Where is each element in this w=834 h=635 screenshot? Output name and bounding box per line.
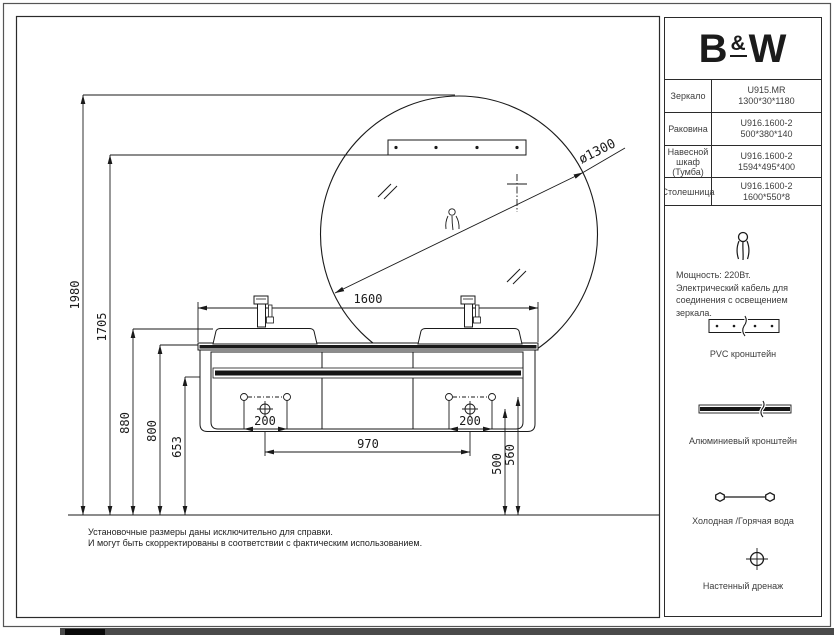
dim-hole-spacing-right: 200 <box>459 414 481 428</box>
row-value: U916.1600-2 1594*495*400 <box>712 146 821 177</box>
dim-hole-height: 560 <box>503 444 517 466</box>
dim-total-height: 1980 <box>68 281 82 310</box>
dim-countertop-width: 1600 <box>354 292 383 306</box>
dim-countertop-height: 800 <box>145 420 159 442</box>
bottom-window-edge <box>60 628 834 635</box>
center-register-mark <box>507 174 527 212</box>
brand-logo: B & W <box>665 18 821 80</box>
row-label: Столешница <box>665 178 712 205</box>
table-row-countertop: Столешница U916.1600-2 1600*550*8 <box>665 178 821 206</box>
dimension-lines <box>83 95 518 515</box>
row-value: U915.MR 1300*30*1180 <box>712 80 821 112</box>
left-basin <box>213 329 317 345</box>
dim-mirror-diameter: ø1300 <box>577 136 619 167</box>
dim-hole-spacing-left: 200 <box>254 414 276 428</box>
pvc-bracket-icon <box>708 315 780 342</box>
table-row-mirror: Зеркало U915.MR 1300*30*1180 <box>665 80 821 113</box>
power-cable-icon <box>727 230 759 271</box>
mirror-cable-icon <box>446 209 459 230</box>
logo-letter-b: B <box>699 29 729 69</box>
power-note: Мощность: 220Вт. Электрический кабель дл… <box>676 269 818 319</box>
row-value: U916.1600-2 1600*550*8 <box>712 178 821 205</box>
wall-drain-icon <box>744 546 770 577</box>
row-label: Навесной шкаф (Тумба) <box>665 146 712 177</box>
row-value: U916.1600-2 500*380*140 <box>712 113 821 145</box>
table-row-cabinet: Навесной шкаф (Тумба) U916.1600-2 1594*4… <box>665 146 821 178</box>
glass-hatch-marks <box>378 184 526 284</box>
dim-drain-spacing: 970 <box>357 437 379 451</box>
right-basin <box>418 329 522 345</box>
aluminum-bracket-caption: Алюминиевый кронштейн <box>665 436 821 446</box>
dim-basin-height: 880 <box>118 412 132 434</box>
mirror-mount-bracket <box>388 140 526 155</box>
aluminum-bracket-icon <box>698 400 792 423</box>
drain-caption: Настенный дренаж <box>665 581 821 591</box>
water-caption: Холодная /Горячая вода <box>665 516 821 526</box>
water-connections-icon <box>713 490 777 509</box>
pvc-bracket-caption: PVC кронштейн <box>665 349 821 359</box>
table-row-sink: Раковина U916.1600-2 500*380*140 <box>665 113 821 146</box>
spec-sidebar: B & W Зеркало U915.MR 1300*30*1180 Раков… <box>664 17 822 617</box>
dim-bar-height: 653 <box>170 436 184 458</box>
logo-letter-w: W <box>749 29 788 69</box>
right-faucet <box>461 296 481 327</box>
reference-footnote: Установочные размеры даны исключительно … <box>88 527 422 549</box>
dim-bracket-height: 1705 <box>95 313 109 342</box>
row-label: Раковина <box>665 113 712 145</box>
installation-drawing-page: 1980 1705 880 800 653 500 560 1600 970 2… <box>0 0 834 635</box>
bottom-window-edge-segment <box>65 629 105 635</box>
left-faucet <box>254 296 274 327</box>
logo-ampersand: & <box>730 33 746 57</box>
vanity-cabinet <box>198 343 538 432</box>
dim-drain-height: 500 <box>490 453 504 475</box>
row-label: Зеркало <box>665 80 712 112</box>
